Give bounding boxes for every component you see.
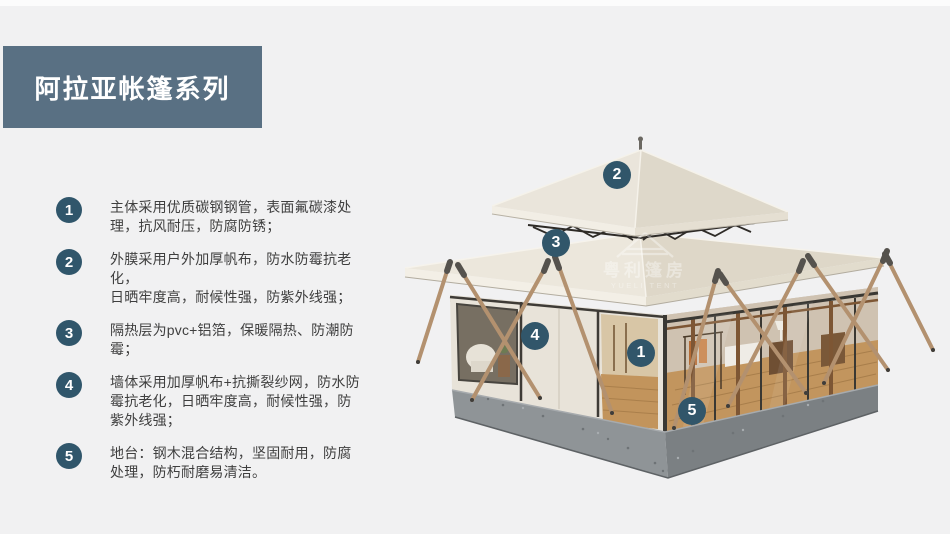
tent-illustration: 粤利篷房 YUELI TENT 1 2 3 4 5 xyxy=(393,133,950,493)
feature-text: 墙体采用加厚帆布+抗撕裂纱网，防水防 霉抗老化，日晒牢度高，耐候性强，防 紫外线… xyxy=(110,373,360,430)
tent-render: 粤利篷房 YUELI TENT xyxy=(393,133,950,493)
callout-badge-3: 3 xyxy=(542,229,570,257)
watermark-cn-text: 粤利篷房 xyxy=(603,260,687,280)
feature-item: 4 墙体采用加厚帆布+抗撕裂纱网，防水防 霉抗老化，日晒牢度高，耐候性强，防 紫… xyxy=(56,372,372,430)
callout-badge-5: 5 xyxy=(678,397,706,425)
top-divider xyxy=(0,0,950,6)
callout-badge-1: 1 xyxy=(627,339,655,367)
feature-item: 5 地台：钢木混合结构，坚固耐用，防腐 处理，防朽耐磨易清洁。 xyxy=(56,443,372,482)
feature-number-badge: 3 xyxy=(56,320,82,346)
feature-list: 1 主体采用优质碳钢钢管，表面氟碳漆处 理，抗风耐压，防腐防锈； 2 外膜采用户… xyxy=(56,197,372,495)
feature-number-badge: 2 xyxy=(56,249,82,275)
feature-item: 2 外膜采用户外加厚帆布，防水防霉抗老化， 日晒牢度高，耐候性强，防紫外线强； xyxy=(56,249,372,307)
page-title: 阿拉亚帐篷系列 xyxy=(34,69,230,106)
feature-text: 隔热层为pvc+铝箔，保暖隔热、防潮防 霉； xyxy=(110,321,354,359)
feature-text: 外膜采用户外加厚帆布，防水防霉抗老化， 日晒牢度高，耐候性强，防紫外线强； xyxy=(110,250,372,307)
feature-number-badge: 4 xyxy=(56,372,82,398)
feature-item: 3 隔热层为pvc+铝箔，保暖隔热、防潮防 霉； xyxy=(56,320,372,359)
title-banner: 阿拉亚帐篷系列 xyxy=(3,46,262,128)
slide: 阿拉亚帐篷系列 1 主体采用优质碳钢钢管，表面氟碳漆处 理，抗风耐压，防腐防锈；… xyxy=(0,0,950,534)
feature-item: 1 主体采用优质碳钢钢管，表面氟碳漆处 理，抗风耐压，防腐防锈； xyxy=(56,197,372,236)
feature-text: 地台：钢木混合结构，坚固耐用，防腐 处理，防朽耐磨易清洁。 xyxy=(110,444,351,482)
feature-text: 主体采用优质碳钢钢管，表面氟碳漆处 理，抗风耐压，防腐防锈； xyxy=(110,198,351,236)
watermark-en-text: YUELI TENT xyxy=(611,281,679,290)
side-table xyxy=(498,355,510,377)
callout-badge-2: 2 xyxy=(603,161,631,189)
feature-number-badge: 5 xyxy=(56,443,82,469)
feature-number-badge: 1 xyxy=(56,197,82,223)
callout-badge-4: 4 xyxy=(521,322,549,350)
upper-roof xyxy=(492,137,788,237)
